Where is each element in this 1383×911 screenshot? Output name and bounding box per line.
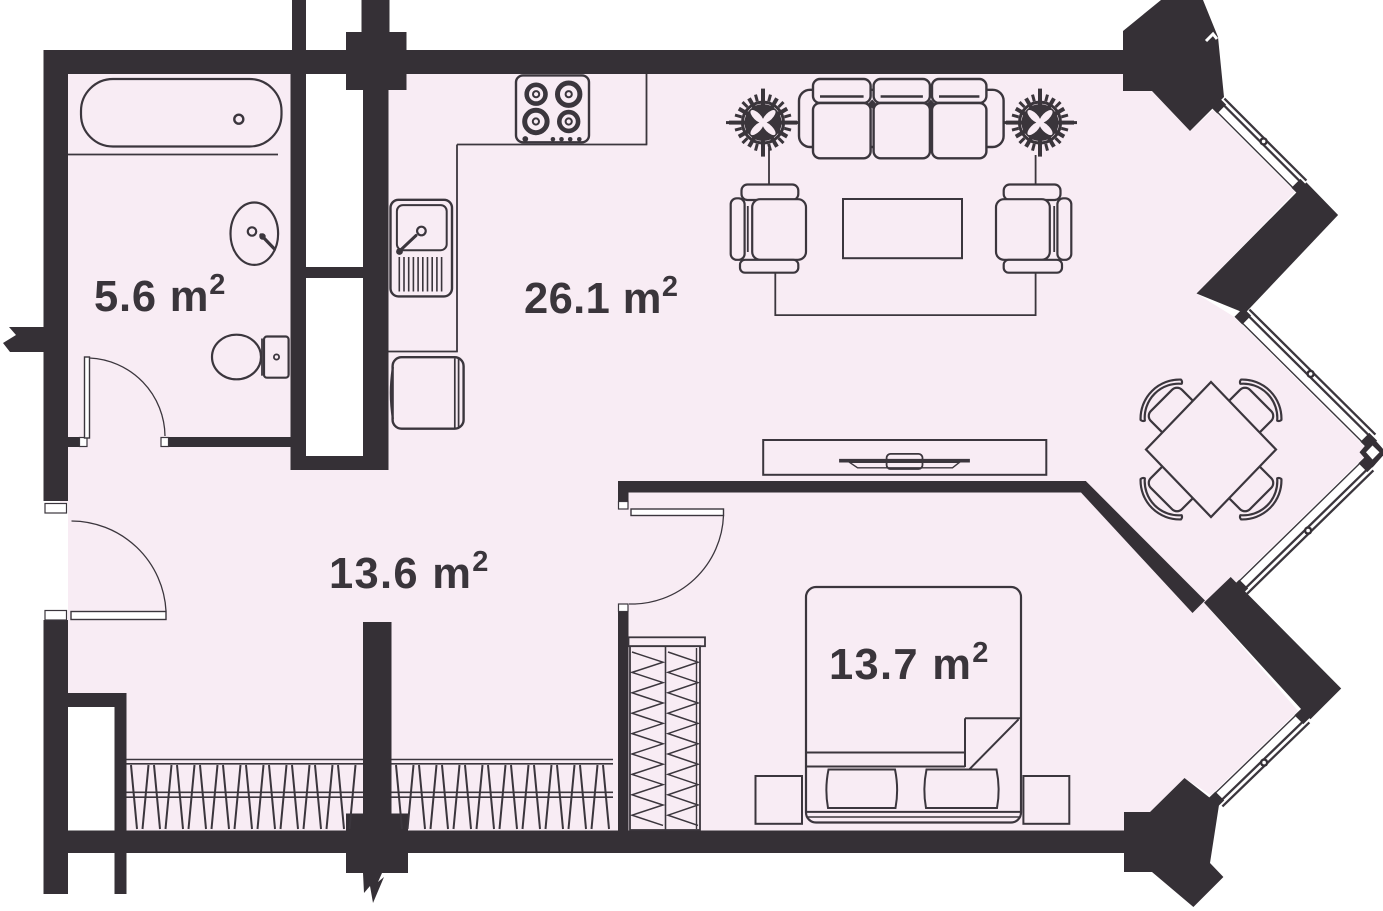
svg-text:26.1 m2: 26.1 m2 [524, 271, 678, 323]
svg-text:5.6 m2: 5.6 m2 [94, 269, 226, 321]
svg-text:13.7 m2: 13.7 m2 [829, 637, 990, 689]
svg-text:13.6 m2: 13.6 m2 [329, 546, 490, 598]
